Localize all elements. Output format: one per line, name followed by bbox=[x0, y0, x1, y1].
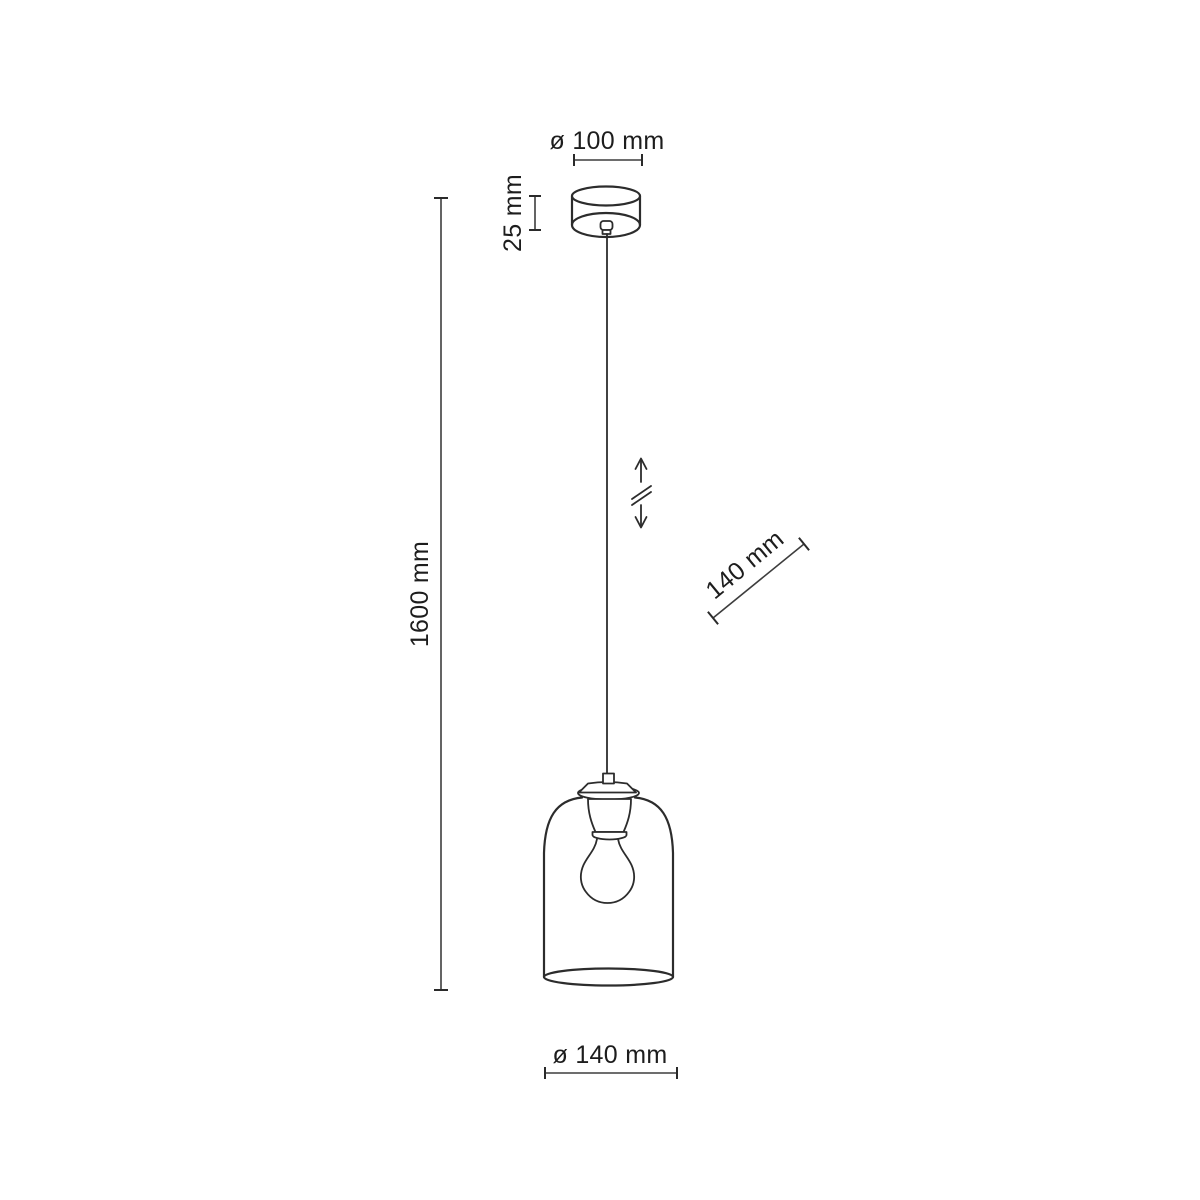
dimension-adjustable-length: 140 mm bbox=[700, 525, 809, 624]
lamp-shade-drawing bbox=[544, 774, 673, 986]
dimension-tick bbox=[708, 612, 718, 624]
dimension-shade-diameter: ø 140 mm bbox=[545, 1041, 677, 1079]
dimension-canopy-diameter: ø 100 mm bbox=[550, 127, 665, 166]
glass-shade-bottom-rim bbox=[544, 969, 673, 986]
diagram-canvas: ø 100 mm 25 mm 1600 mm bbox=[0, 0, 1200, 1200]
lamp-socket bbox=[588, 799, 631, 832]
glass-shade-left-wall bbox=[544, 798, 582, 978]
dimension-tick bbox=[799, 538, 809, 550]
height-adjustable-icon bbox=[632, 459, 651, 528]
overall-height-label: 1600 mm bbox=[406, 541, 434, 647]
canopy-top-face bbox=[572, 187, 640, 206]
break-slash bbox=[632, 486, 651, 499]
dimension-canopy-height: 25 mm bbox=[499, 174, 541, 252]
break-slash bbox=[632, 492, 651, 505]
pendant-lamp-dimension-drawing: ø 100 mm 25 mm 1600 mm bbox=[0, 0, 1200, 1200]
dimension-overall-height: 1600 mm bbox=[406, 198, 448, 990]
canopy-diameter-label: ø 100 mm bbox=[550, 127, 665, 155]
cord-grip bbox=[601, 221, 613, 230]
glass-shade-right-wall bbox=[635, 798, 673, 978]
light-bulb bbox=[581, 839, 634, 903]
cord-connector bbox=[603, 774, 614, 784]
shade-diameter-label: ø 140 mm bbox=[553, 1041, 668, 1069]
canopy-height-label: 25 mm bbox=[499, 174, 527, 252]
ceiling-canopy-drawing bbox=[572, 187, 640, 238]
